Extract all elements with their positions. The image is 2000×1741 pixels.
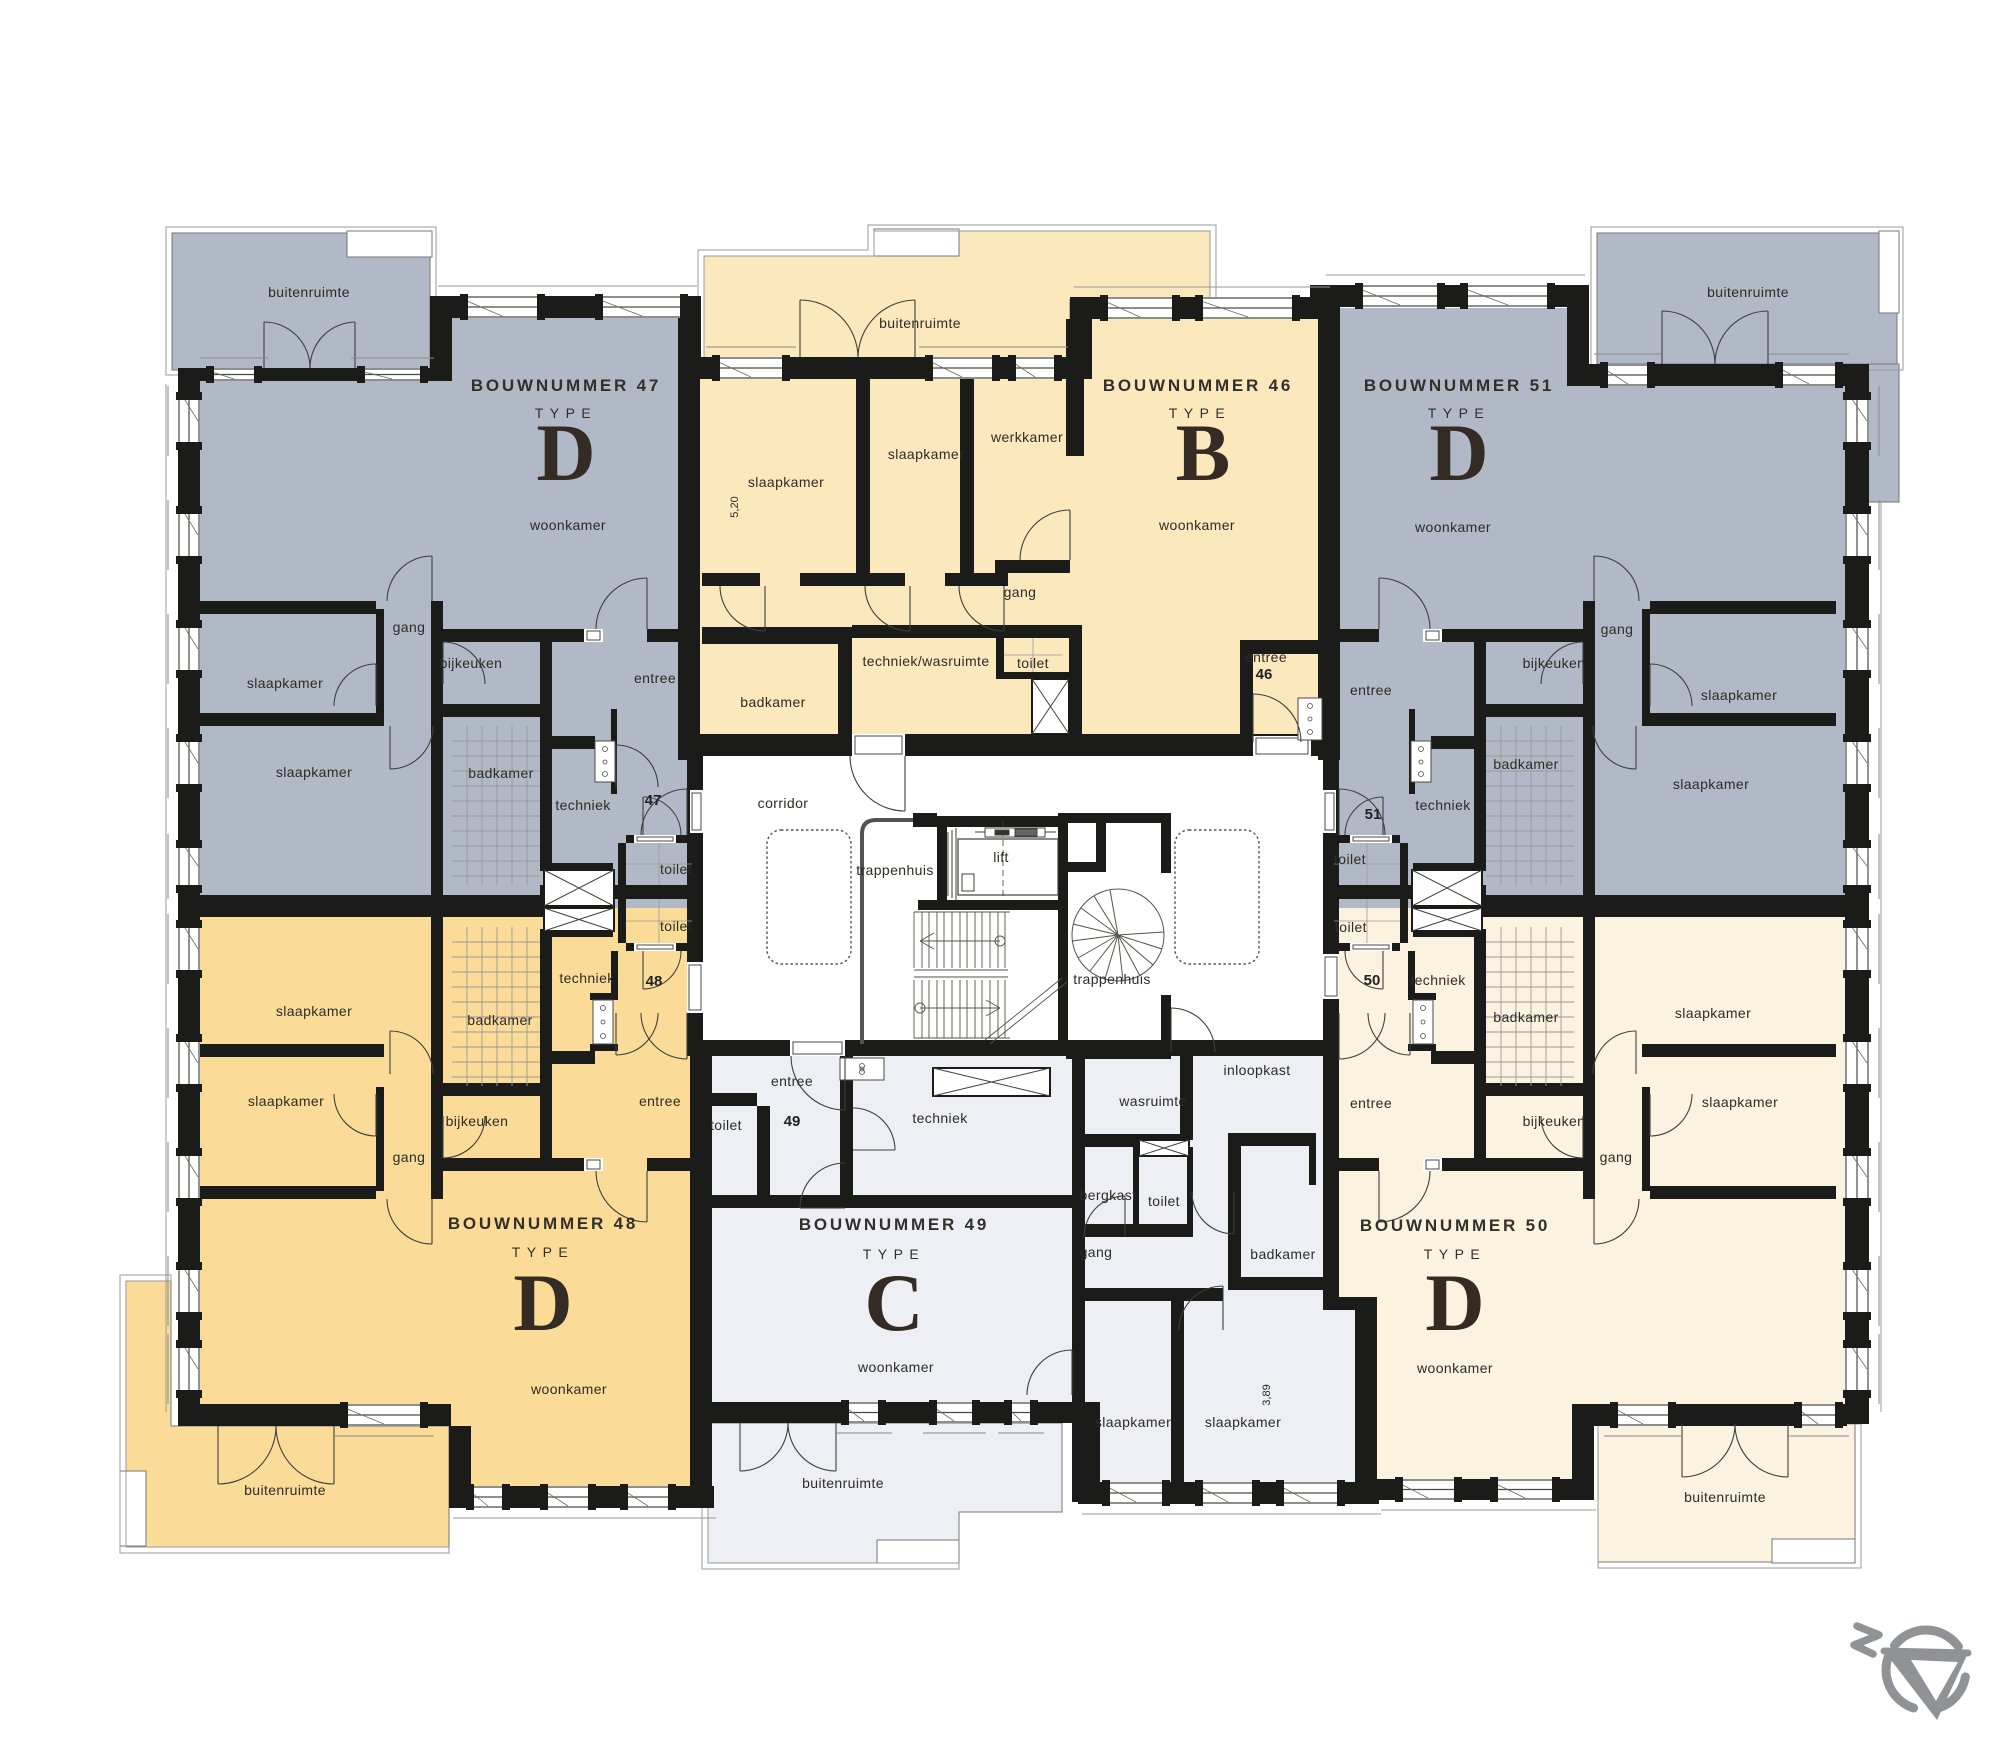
svg-text:wasruimte: wasruimte <box>1118 1093 1186 1109</box>
svg-text:trappenhuis: trappenhuis <box>856 862 934 878</box>
svg-text:badkamer: badkamer <box>1493 756 1558 772</box>
svg-text:51: 51 <box>1365 806 1382 823</box>
svg-text:gang: gang <box>1004 584 1037 600</box>
svg-text:50: 50 <box>1364 972 1381 989</box>
svg-text:techniek: techniek <box>559 970 615 986</box>
svg-text:D: D <box>1429 407 1488 498</box>
svg-text:badkamer: badkamer <box>1250 1246 1315 1262</box>
svg-text:slaapkamer: slaapkamer <box>748 474 824 490</box>
svg-text:buitenruimte: buitenruimte <box>1707 284 1789 300</box>
svg-text:badkamer: badkamer <box>740 694 805 710</box>
svg-text:slaapkamer: slaapkamer <box>1702 1094 1778 1110</box>
svg-text:C: C <box>864 1257 923 1348</box>
svg-text:techniek: techniek <box>1415 797 1471 813</box>
svg-text:slaapkamer: slaapkamer <box>888 446 964 462</box>
svg-text:buitenruimte: buitenruimte <box>268 284 350 300</box>
svg-text:toilet: toilet <box>660 861 692 877</box>
svg-text:entree: entree <box>771 1073 813 1089</box>
svg-text:toilet: toilet <box>1335 919 1367 935</box>
svg-text:gang: gang <box>1600 1149 1633 1165</box>
svg-text:B: B <box>1176 407 1231 498</box>
svg-text:toilet: toilet <box>710 1117 742 1133</box>
svg-text:slaapkamer: slaapkamer <box>1701 687 1777 703</box>
svg-text:werkkamer: werkkamer <box>990 429 1063 445</box>
svg-text:techniek: techniek <box>555 797 611 813</box>
svg-text:woonkamer: woonkamer <box>530 1381 607 1397</box>
svg-text:D: D <box>536 407 595 498</box>
svg-text:entree: entree <box>1350 1095 1392 1111</box>
svg-text:gang: gang <box>393 1149 426 1165</box>
svg-text:buitenruimte: buitenruimte <box>244 1482 326 1498</box>
svg-text:corridor: corridor <box>758 795 809 811</box>
svg-text:gang: gang <box>1080 1244 1113 1260</box>
svg-text:toilet: toilet <box>660 918 692 934</box>
svg-text:3,89: 3,89 <box>1261 1384 1273 1405</box>
svg-text:toilet: toilet <box>1017 655 1049 671</box>
svg-text:woonkamer: woonkamer <box>1158 517 1235 533</box>
svg-text:slaapkamer: slaapkamer <box>1675 1005 1751 1021</box>
svg-text:gang: gang <box>1601 621 1634 637</box>
svg-text:woonkamer: woonkamer <box>529 517 606 533</box>
svg-text:buitenruimte: buitenruimte <box>1684 1489 1766 1505</box>
svg-text:bijkeuken: bijkeuken <box>1523 1113 1586 1129</box>
svg-text:entree: entree <box>1350 682 1392 698</box>
svg-text:bijkeuken: bijkeuken <box>446 1113 509 1129</box>
svg-text:bijkeuken: bijkeuken <box>440 655 503 671</box>
svg-text:5,20: 5,20 <box>729 496 741 517</box>
svg-text:slaapkamer: slaapkamer <box>248 1093 324 1109</box>
svg-text:D: D <box>1425 1257 1484 1348</box>
svg-text:48: 48 <box>646 973 663 990</box>
svg-text:inloopkast: inloopkast <box>1223 1062 1290 1078</box>
svg-text:badkamer: badkamer <box>467 1012 532 1028</box>
svg-text:techniek/wasruimte: techniek/wasruimte <box>862 653 989 669</box>
svg-text:slaapkamer: slaapkamer <box>276 1003 352 1019</box>
svg-text:trappenhuis: trappenhuis <box>1073 971 1151 987</box>
svg-text:slaapkamer: slaapkamer <box>247 675 323 691</box>
svg-text:49: 49 <box>784 1113 801 1130</box>
svg-text:BOUWNUMMER 50: BOUWNUMMER 50 <box>1360 1216 1550 1235</box>
svg-text:bijkeuken: bijkeuken <box>1523 655 1586 671</box>
svg-text:buitenruimte: buitenruimte <box>879 315 961 331</box>
svg-text:BOUWNUMMER 49: BOUWNUMMER 49 <box>799 1215 989 1234</box>
svg-text:47: 47 <box>645 792 662 809</box>
svg-text:D: D <box>513 1257 572 1348</box>
svg-text:slaapkamer: slaapkamer <box>276 764 352 780</box>
svg-text:woonkamer: woonkamer <box>1414 519 1491 535</box>
svg-text:entree: entree <box>634 670 676 686</box>
svg-text:slaapkamer: slaapkamer <box>1095 1414 1171 1430</box>
svg-text:slaapkamer: slaapkamer <box>1205 1414 1281 1430</box>
svg-text:slaapkamer: slaapkamer <box>1673 776 1749 792</box>
svg-text:woonkamer: woonkamer <box>1416 1360 1493 1376</box>
svg-text:gang: gang <box>393 619 426 635</box>
svg-text:techniek: techniek <box>1410 972 1466 988</box>
svg-text:techniek: techniek <box>912 1110 968 1126</box>
svg-text:entree: entree <box>639 1093 681 1109</box>
svg-text:badkamer: badkamer <box>468 765 533 781</box>
svg-text:buitenruimte: buitenruimte <box>802 1475 884 1491</box>
svg-text:bergkast: bergkast <box>1080 1187 1137 1203</box>
svg-text:BOUWNUMMER 47: BOUWNUMMER 47 <box>471 376 661 395</box>
svg-text:badkamer: badkamer <box>1493 1009 1558 1025</box>
svg-text:46: 46 <box>1256 666 1273 683</box>
svg-text:toilet: toilet <box>1334 851 1366 867</box>
svg-text:entree: entree <box>1245 649 1287 665</box>
svg-text:BOUWNUMMER 46: BOUWNUMMER 46 <box>1103 376 1293 395</box>
svg-text:BOUWNUMMER 51: BOUWNUMMER 51 <box>1364 376 1554 395</box>
svg-text:woonkamer: woonkamer <box>857 1359 934 1375</box>
svg-text:BOUWNUMMER 48: BOUWNUMMER 48 <box>448 1214 638 1233</box>
svg-text:lift: lift <box>993 849 1009 865</box>
svg-text:toilet: toilet <box>1148 1193 1180 1209</box>
